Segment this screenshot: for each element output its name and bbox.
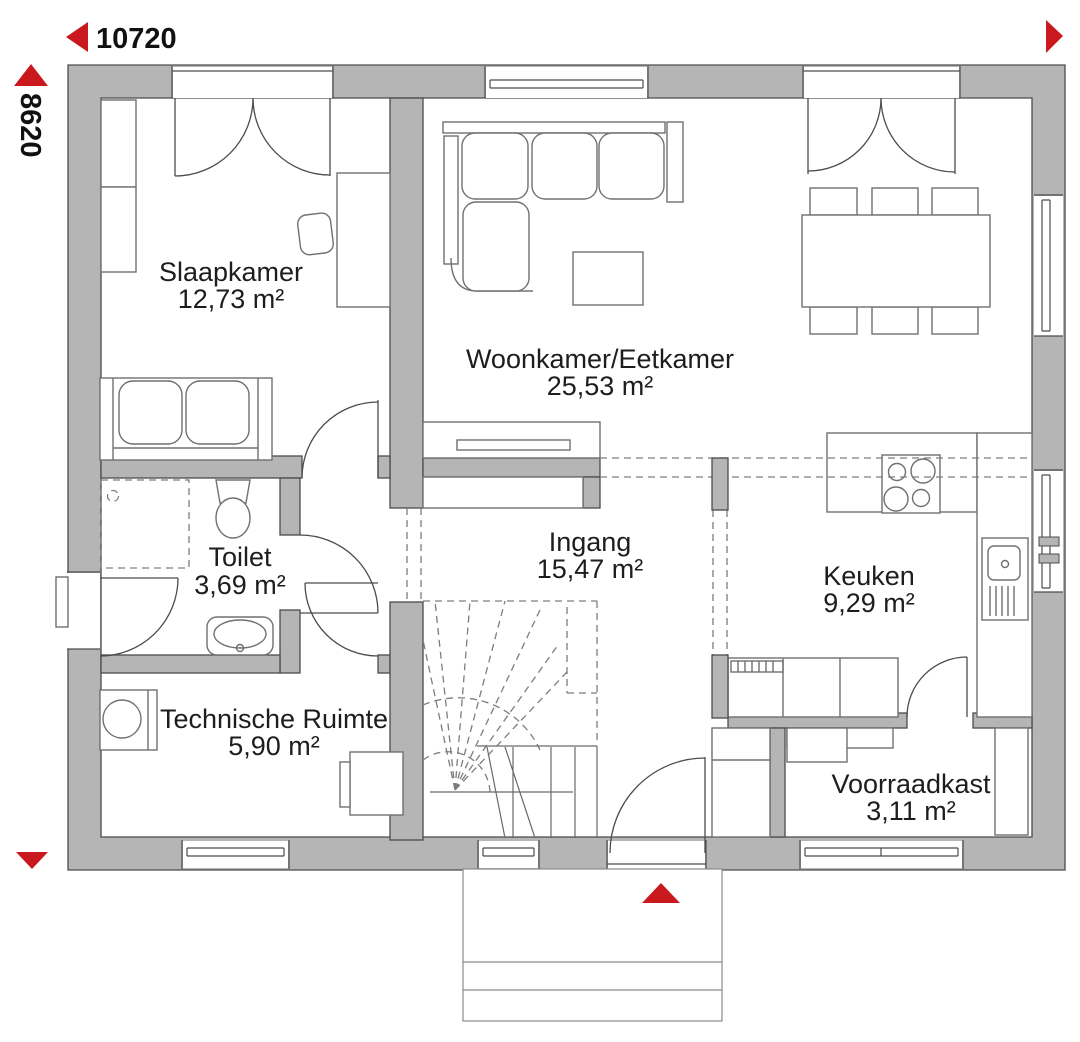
wall-bedroom-east: [390, 98, 423, 508]
kitchen-pillars: [712, 458, 728, 718]
dining-window: [1034, 195, 1063, 336]
room-label-voorraadkast: Voorraadkast: [831, 769, 991, 799]
wall-bedroom-south-jamb: [378, 456, 390, 478]
room-label-woonkamer: Woonkamer/Eetkamer: [466, 344, 734, 374]
shelf: [995, 728, 1028, 835]
corner-sofa: [443, 122, 683, 291]
ingang-furniture: [423, 477, 583, 508]
entry-closet: [712, 728, 770, 837]
wardrobe: [101, 187, 136, 272]
bedroom-french-door: [172, 66, 333, 176]
dining-set: [802, 188, 990, 334]
bed: [100, 378, 272, 460]
chair: [872, 307, 918, 334]
bedroom-door: [302, 400, 378, 478]
washing-machine: [100, 690, 157, 750]
hob: [882, 455, 940, 513]
wall-toilet-south: [101, 655, 280, 673]
tv: [457, 440, 570, 450]
pantry-window: [800, 840, 963, 869]
chair: [810, 307, 857, 334]
living-window: [485, 66, 648, 98]
kitchen-door: [907, 657, 967, 717]
floor-plan: 10720 8620 Slaapkamer 12,73 m² Woonkamer…: [0, 0, 1080, 1042]
room-area-technische: 5,90 m²: [228, 731, 320, 761]
wall-toilet-east-bottom: [280, 610, 300, 673]
dimension-height-label: 8620: [14, 93, 46, 158]
wall-ingang-north: [423, 458, 600, 477]
room-area-slaapkamer: 12,73 m²: [178, 284, 285, 314]
tv-cabinet: [423, 422, 600, 458]
shower-outline: [101, 480, 189, 568]
room-area-toilet: 3,69 m²: [194, 570, 286, 600]
room-label-toilet: Toilet: [208, 542, 272, 572]
desk: [337, 173, 390, 307]
side-door: [56, 572, 178, 656]
technical-door: [305, 583, 378, 656]
wall-ingang-pillar: [583, 477, 600, 508]
stair-window: [478, 840, 539, 869]
dining-french-door: [803, 66, 960, 174]
staircase: [423, 601, 597, 838]
living-furniture: [423, 122, 990, 458]
kitchen-window: [1034, 470, 1063, 592]
cabinet: [340, 752, 403, 815]
pillow: [119, 381, 182, 444]
chair: [932, 188, 978, 215]
wc-bowl: [216, 498, 250, 538]
chair: [932, 307, 978, 334]
dining-table: [802, 215, 990, 307]
wall-pantry-west: [770, 728, 785, 837]
washbasin: [207, 617, 273, 655]
wall-toilet-east-top: [280, 478, 300, 535]
wardrobe: [101, 100, 136, 187]
sink: [982, 538, 1028, 620]
sideboard: [423, 477, 583, 508]
room-label-ingang: Ingang: [549, 527, 632, 557]
dimension-arrow-left-icon: [66, 22, 88, 52]
shelf: [787, 728, 847, 762]
dimension-width-label: 10720: [96, 23, 177, 55]
room-area-ingang: 15,47 m²: [537, 554, 644, 584]
pillow: [186, 381, 249, 444]
counter-bottom: [728, 658, 898, 717]
floor-plan-page: 10720 8620 Slaapkamer 12,73 m² Woonkamer…: [0, 0, 1080, 1042]
room-label-keuken: Keuken: [823, 561, 915, 591]
room-label-technische: Technische Ruimte: [160, 704, 388, 734]
dimension-arrow-up-icon: [14, 64, 48, 86]
room-area-keuken: 9,29 m²: [823, 588, 915, 618]
desk-chair: [297, 212, 335, 256]
technical-window: [182, 840, 289, 869]
front-door: [607, 757, 706, 869]
wall-vestibule-jamb: [378, 655, 390, 673]
side-door-threshold: [56, 577, 68, 627]
coffee-table: [573, 252, 643, 305]
shower-drain: [108, 491, 119, 502]
porch: [463, 869, 722, 1021]
dimension-arrow-right-icon: [1046, 20, 1063, 53]
room-area-woonkamer: 25,53 m²: [547, 371, 654, 401]
toilet-door: [300, 535, 378, 613]
chair: [872, 188, 918, 215]
room-label-slaapkamer: Slaapkamer: [159, 257, 303, 287]
chair: [810, 188, 857, 215]
room-area-voorraadkast: 3,11 m²: [866, 796, 956, 826]
dimension-arrow-down-icon: [16, 852, 48, 869]
